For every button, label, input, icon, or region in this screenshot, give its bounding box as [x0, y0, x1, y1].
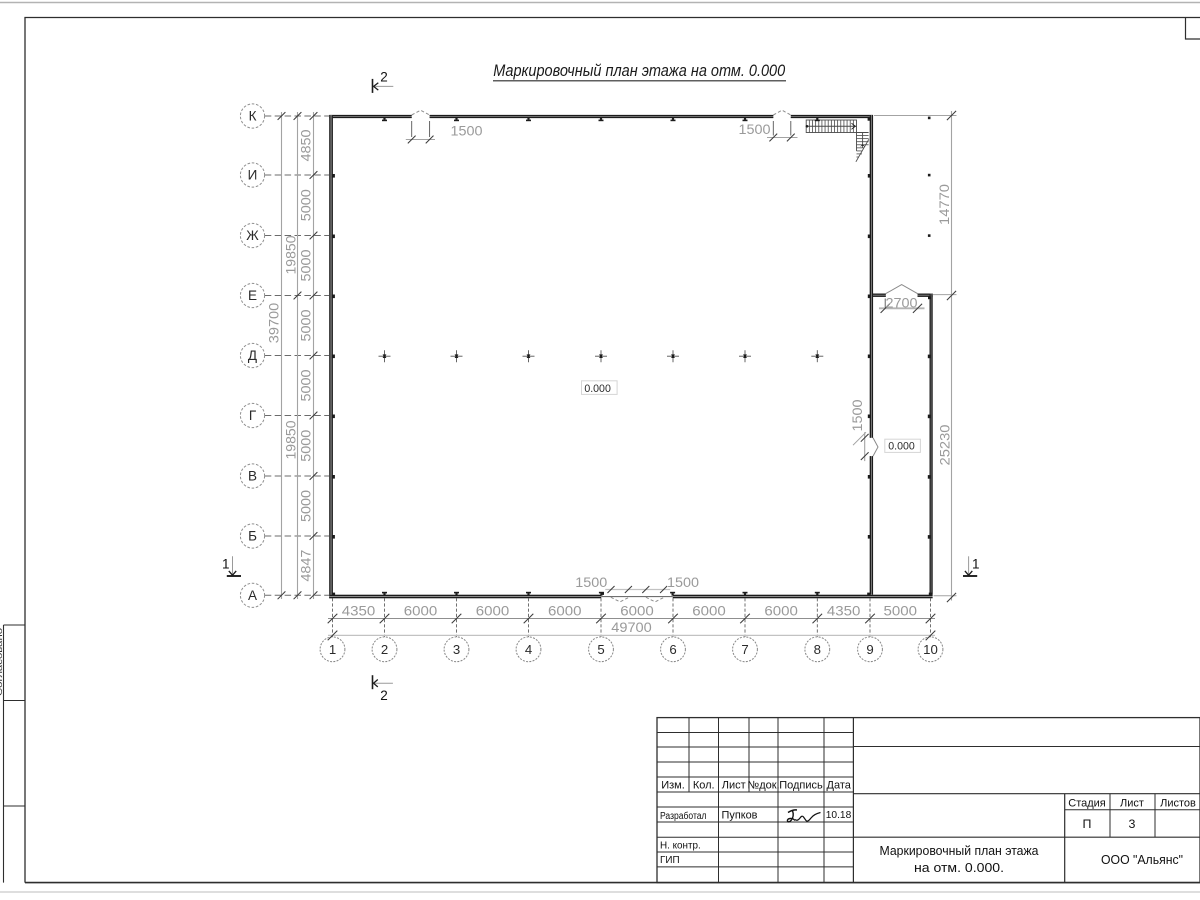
- svg-text:8: 8: [814, 642, 821, 657]
- svg-text:10: 10: [923, 642, 938, 657]
- svg-text:5000: 5000: [299, 370, 314, 402]
- svg-text:1500: 1500: [850, 400, 865, 432]
- svg-text:Маркировочный план этажа: Маркировочный план этажа: [880, 843, 1040, 858]
- svg-text:на отм. 0.000.: на отм. 0.000.: [914, 860, 1004, 875]
- svg-text:Б: Б: [248, 529, 257, 544]
- svg-text:7: 7: [741, 642, 748, 657]
- svg-text:Г: Г: [249, 408, 257, 423]
- svg-text:19850: 19850: [284, 236, 299, 275]
- svg-text:2: 2: [380, 688, 388, 703]
- svg-text:1500: 1500: [739, 122, 771, 137]
- svg-text:Изм.: Изм.: [661, 780, 685, 792]
- svg-text:ГИП: ГИП: [660, 855, 680, 866]
- svg-text:Согласовано: Согласовано: [0, 627, 4, 696]
- svg-text:25230: 25230: [937, 425, 952, 466]
- svg-text:Кол.: Кол.: [693, 780, 715, 792]
- svg-text:6000: 6000: [620, 603, 654, 618]
- svg-text:5000: 5000: [299, 189, 314, 221]
- svg-text:4350: 4350: [827, 603, 861, 618]
- svg-text:5000: 5000: [299, 490, 314, 522]
- svg-text:2700: 2700: [886, 295, 918, 310]
- svg-text:10.18: 10.18: [826, 810, 852, 821]
- svg-text:6000: 6000: [404, 603, 438, 618]
- svg-text:3: 3: [1129, 817, 1136, 831]
- svg-text:ООО "Альянс": ООО "Альянс": [1101, 852, 1183, 867]
- svg-text:49700: 49700: [611, 620, 652, 635]
- svg-text:А: А: [248, 588, 257, 603]
- svg-text:№док.: №док.: [747, 780, 779, 792]
- svg-text:6000: 6000: [692, 603, 726, 618]
- svg-text:Е: Е: [248, 288, 257, 303]
- svg-text:Лист: Лист: [722, 780, 746, 792]
- svg-text:9: 9: [866, 642, 873, 657]
- svg-text:19850: 19850: [284, 421, 299, 460]
- svg-text:Лист: Лист: [1120, 797, 1144, 809]
- svg-text:1500: 1500: [667, 575, 699, 590]
- svg-text:Подпись: Подпись: [779, 780, 823, 792]
- svg-text:Д: Д: [248, 348, 257, 363]
- svg-text:П: П: [1083, 817, 1092, 831]
- svg-text:Н. контр.: Н. контр.: [660, 840, 701, 851]
- svg-text:0.000: 0.000: [584, 383, 611, 395]
- svg-text:К: К: [249, 109, 257, 124]
- svg-text:2: 2: [380, 69, 388, 84]
- svg-text:1: 1: [222, 557, 230, 572]
- svg-text:1500: 1500: [575, 575, 607, 590]
- svg-text:Ж: Ж: [246, 228, 259, 243]
- svg-text:1: 1: [972, 556, 980, 571]
- svg-text:Листов: Листов: [1160, 797, 1196, 809]
- svg-text:Стадия: Стадия: [1068, 797, 1106, 809]
- svg-text:1500: 1500: [451, 124, 483, 139]
- svg-text:4847: 4847: [299, 550, 314, 582]
- svg-text:5: 5: [597, 642, 604, 657]
- svg-text:3: 3: [453, 642, 460, 657]
- svg-text:Разработал: Разработал: [660, 811, 707, 822]
- svg-text:В: В: [248, 469, 257, 484]
- svg-text:5000: 5000: [884, 603, 918, 618]
- svg-text:6: 6: [669, 642, 676, 657]
- svg-text:5000: 5000: [299, 310, 314, 342]
- svg-text:Маркировочный план этажа на от: Маркировочный план этажа на отм. 0.000: [493, 62, 785, 80]
- svg-text:4: 4: [525, 642, 532, 657]
- svg-text:14770: 14770: [937, 184, 952, 225]
- svg-text:6000: 6000: [548, 603, 582, 618]
- svg-text:4350: 4350: [342, 603, 376, 618]
- svg-text:6000: 6000: [764, 603, 798, 618]
- svg-text:6000: 6000: [476, 603, 510, 618]
- svg-text:5000: 5000: [299, 430, 314, 462]
- svg-text:5000: 5000: [299, 250, 314, 282]
- svg-text:4850: 4850: [299, 130, 314, 162]
- svg-text:1: 1: [329, 642, 336, 657]
- svg-text:2: 2: [381, 642, 388, 657]
- svg-text:И: И: [248, 168, 258, 183]
- svg-text:39700: 39700: [266, 303, 281, 344]
- svg-text:Дата: Дата: [827, 780, 852, 792]
- svg-text:0.000: 0.000: [888, 441, 915, 453]
- svg-text:Пупков: Пупков: [722, 809, 758, 821]
